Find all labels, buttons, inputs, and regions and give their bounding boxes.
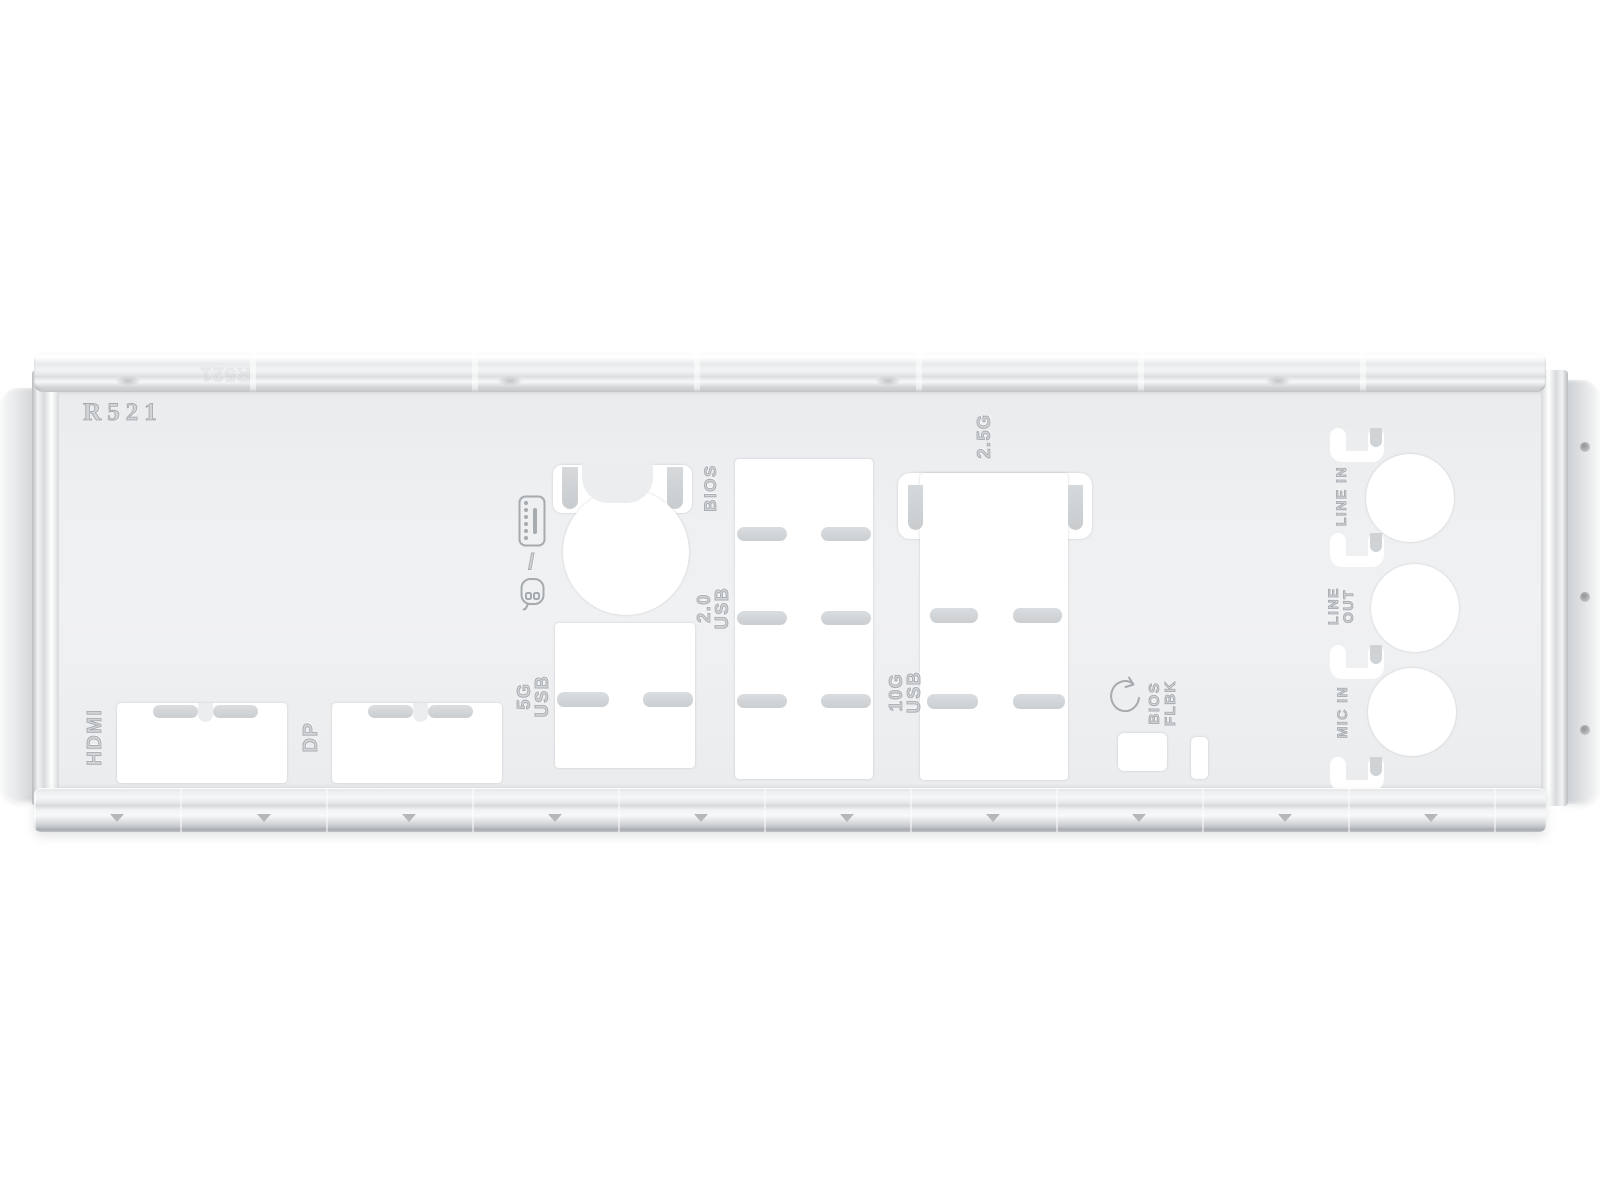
usb-5g-cutout: [555, 623, 695, 768]
grounding-finger: [1370, 533, 1382, 552]
ps2-keyboard-icon: [518, 495, 546, 547]
bios-flashback-button-hole: [1118, 733, 1167, 771]
line-in-label: LINE IN: [1334, 460, 1350, 532]
edge-notch: [413, 703, 428, 722]
usb-5g-label: 5G USB: [515, 666, 551, 726]
mic-in-jack-hole: [1368, 668, 1456, 756]
grounding-finger: [1370, 428, 1382, 447]
fold-dimple: [115, 376, 141, 386]
grounding-finger: [1370, 645, 1382, 664]
grounding-finger: [1013, 608, 1062, 623]
lan-25g-label: 2.5G: [975, 408, 995, 464]
usb-10g-cutout: [920, 473, 1068, 780]
shield-face-plate: R521 HDMI DP /: [55, 390, 1545, 790]
audio-spring-cutout: [1330, 645, 1384, 679]
io-shield-product-photo: R521 HDMI DP /: [0, 0, 1600, 1200]
hdmi-label: HDMI: [85, 702, 107, 772]
top-fold-stamp: R521: [170, 364, 280, 383]
audio-spring-cutout: [1330, 428, 1384, 462]
line-out-jack-hole: [1371, 564, 1459, 652]
grounding-finger: [557, 692, 609, 707]
usb-20-cutout: [735, 459, 873, 779]
edge-notch: [582, 463, 653, 503]
grounding-finger: [428, 705, 473, 718]
grounding-finger: [737, 694, 787, 708]
grounding-finger: [562, 467, 578, 509]
right-fold-edge: [1541, 370, 1568, 806]
fold-notch: [402, 814, 416, 822]
grounding-finger: [821, 527, 871, 541]
fold-dimple: [1265, 376, 1291, 386]
fold-notch: [986, 814, 1000, 822]
ps2-mouse-icon: [519, 577, 546, 611]
fold-dimple: [497, 376, 523, 386]
fold-notch: [1424, 814, 1438, 822]
grounding-finger: [643, 692, 693, 707]
fold-notch: [110, 814, 124, 822]
rivet-dimple: [1580, 725, 1590, 735]
fold-notch: [548, 814, 562, 822]
grounding-finger: [930, 608, 978, 623]
grounding-finger: [1068, 485, 1083, 530]
rivet-dimple: [1580, 592, 1590, 602]
grounding-finger: [908, 485, 923, 530]
grounding-finger: [737, 527, 787, 541]
usb-10g-label: 10G USB: [887, 662, 923, 722]
edge-notch: [198, 703, 213, 722]
usb-20-label: 2.0 USB: [695, 578, 731, 638]
grounding-finger: [1370, 757, 1382, 776]
audio-spring-cutout: [1330, 757, 1384, 791]
keyboard-mouse-icon-group: /: [515, 495, 549, 611]
fold-dimple: [875, 376, 901, 386]
keyboard-mouse-separator: /: [528, 551, 536, 573]
fold-notch: [1278, 814, 1292, 822]
rivet-dimple: [1580, 442, 1590, 452]
displayport-cutout: [332, 703, 502, 783]
line-in-jack-hole: [1366, 454, 1454, 542]
top-fold-edge: R521: [34, 352, 1546, 392]
grounding-finger: [368, 705, 413, 718]
bios-label: BIOS: [702, 462, 720, 514]
grounding-finger: [737, 611, 787, 625]
left-fold-edge: [32, 370, 59, 806]
line-out-label: LINE OUT: [1326, 583, 1356, 629]
audio-spring-cutout: [1330, 533, 1384, 567]
hdmi-cutout: [117, 703, 287, 783]
grounding-finger: [1013, 694, 1065, 709]
grounding-finger: [821, 694, 871, 708]
bottom-fold-edge: [34, 788, 1546, 832]
bios-flashback-circular-arrow-icon: [1105, 676, 1145, 722]
fold-notch: [694, 814, 708, 822]
grounding-finger: [213, 705, 258, 718]
small-slot-cutout: [1191, 737, 1208, 779]
fold-notch: [1132, 814, 1146, 822]
bios-flashback-label: BIOS FLBK: [1147, 677, 1179, 729]
mic-in-label: MIC IN: [1335, 681, 1351, 743]
displayport-label: DP: [301, 715, 323, 759]
grounding-finger: [667, 467, 683, 509]
fold-notch: [257, 814, 271, 822]
grounding-finger: [927, 694, 978, 709]
fold-notch: [840, 814, 854, 822]
ps2-port-hole: [563, 489, 689, 615]
grounding-finger: [821, 611, 871, 625]
grounding-finger: [153, 705, 198, 718]
part-code-stamp: R521: [63, 400, 183, 425]
